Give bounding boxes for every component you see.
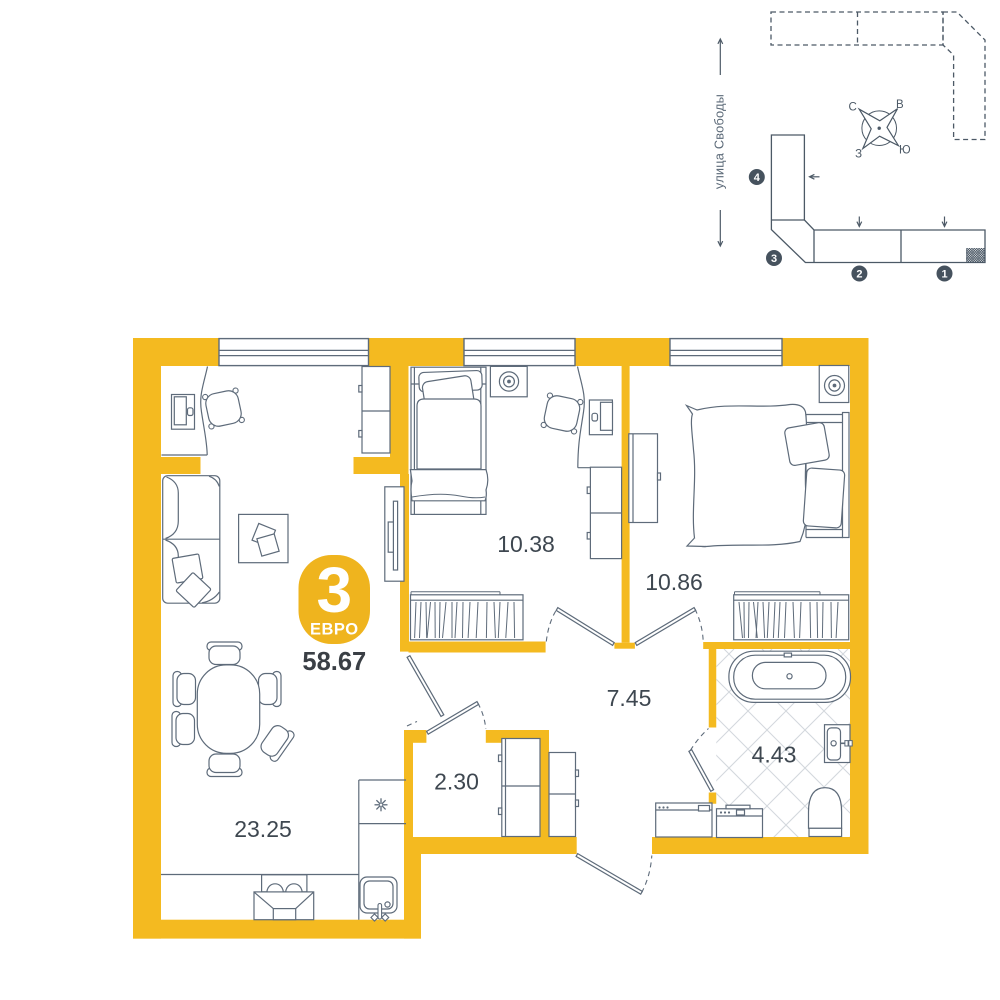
svg-text:1: 1 xyxy=(941,268,947,280)
svg-text:4: 4 xyxy=(754,172,761,184)
svg-text:10.86: 10.86 xyxy=(645,569,703,595)
svg-text:3: 3 xyxy=(771,253,777,265)
svg-text:улица Свободы: улица Свободы xyxy=(712,94,727,189)
svg-text:З: З xyxy=(855,148,862,160)
svg-text:2.30: 2.30 xyxy=(434,769,479,795)
svg-text:ЕВРО: ЕВРО xyxy=(310,621,359,639)
svg-text:10.38: 10.38 xyxy=(497,531,555,557)
svg-text:Ю: Ю xyxy=(899,144,911,156)
svg-text:2: 2 xyxy=(856,268,862,280)
svg-text:23.25: 23.25 xyxy=(234,816,292,842)
svg-text:В: В xyxy=(896,99,904,111)
svg-text:С: С xyxy=(848,101,856,113)
svg-text:7.45: 7.45 xyxy=(607,685,652,711)
svg-text:4.43: 4.43 xyxy=(752,742,797,768)
svg-text:58.67: 58.67 xyxy=(302,648,366,676)
svg-text:3: 3 xyxy=(317,554,353,626)
